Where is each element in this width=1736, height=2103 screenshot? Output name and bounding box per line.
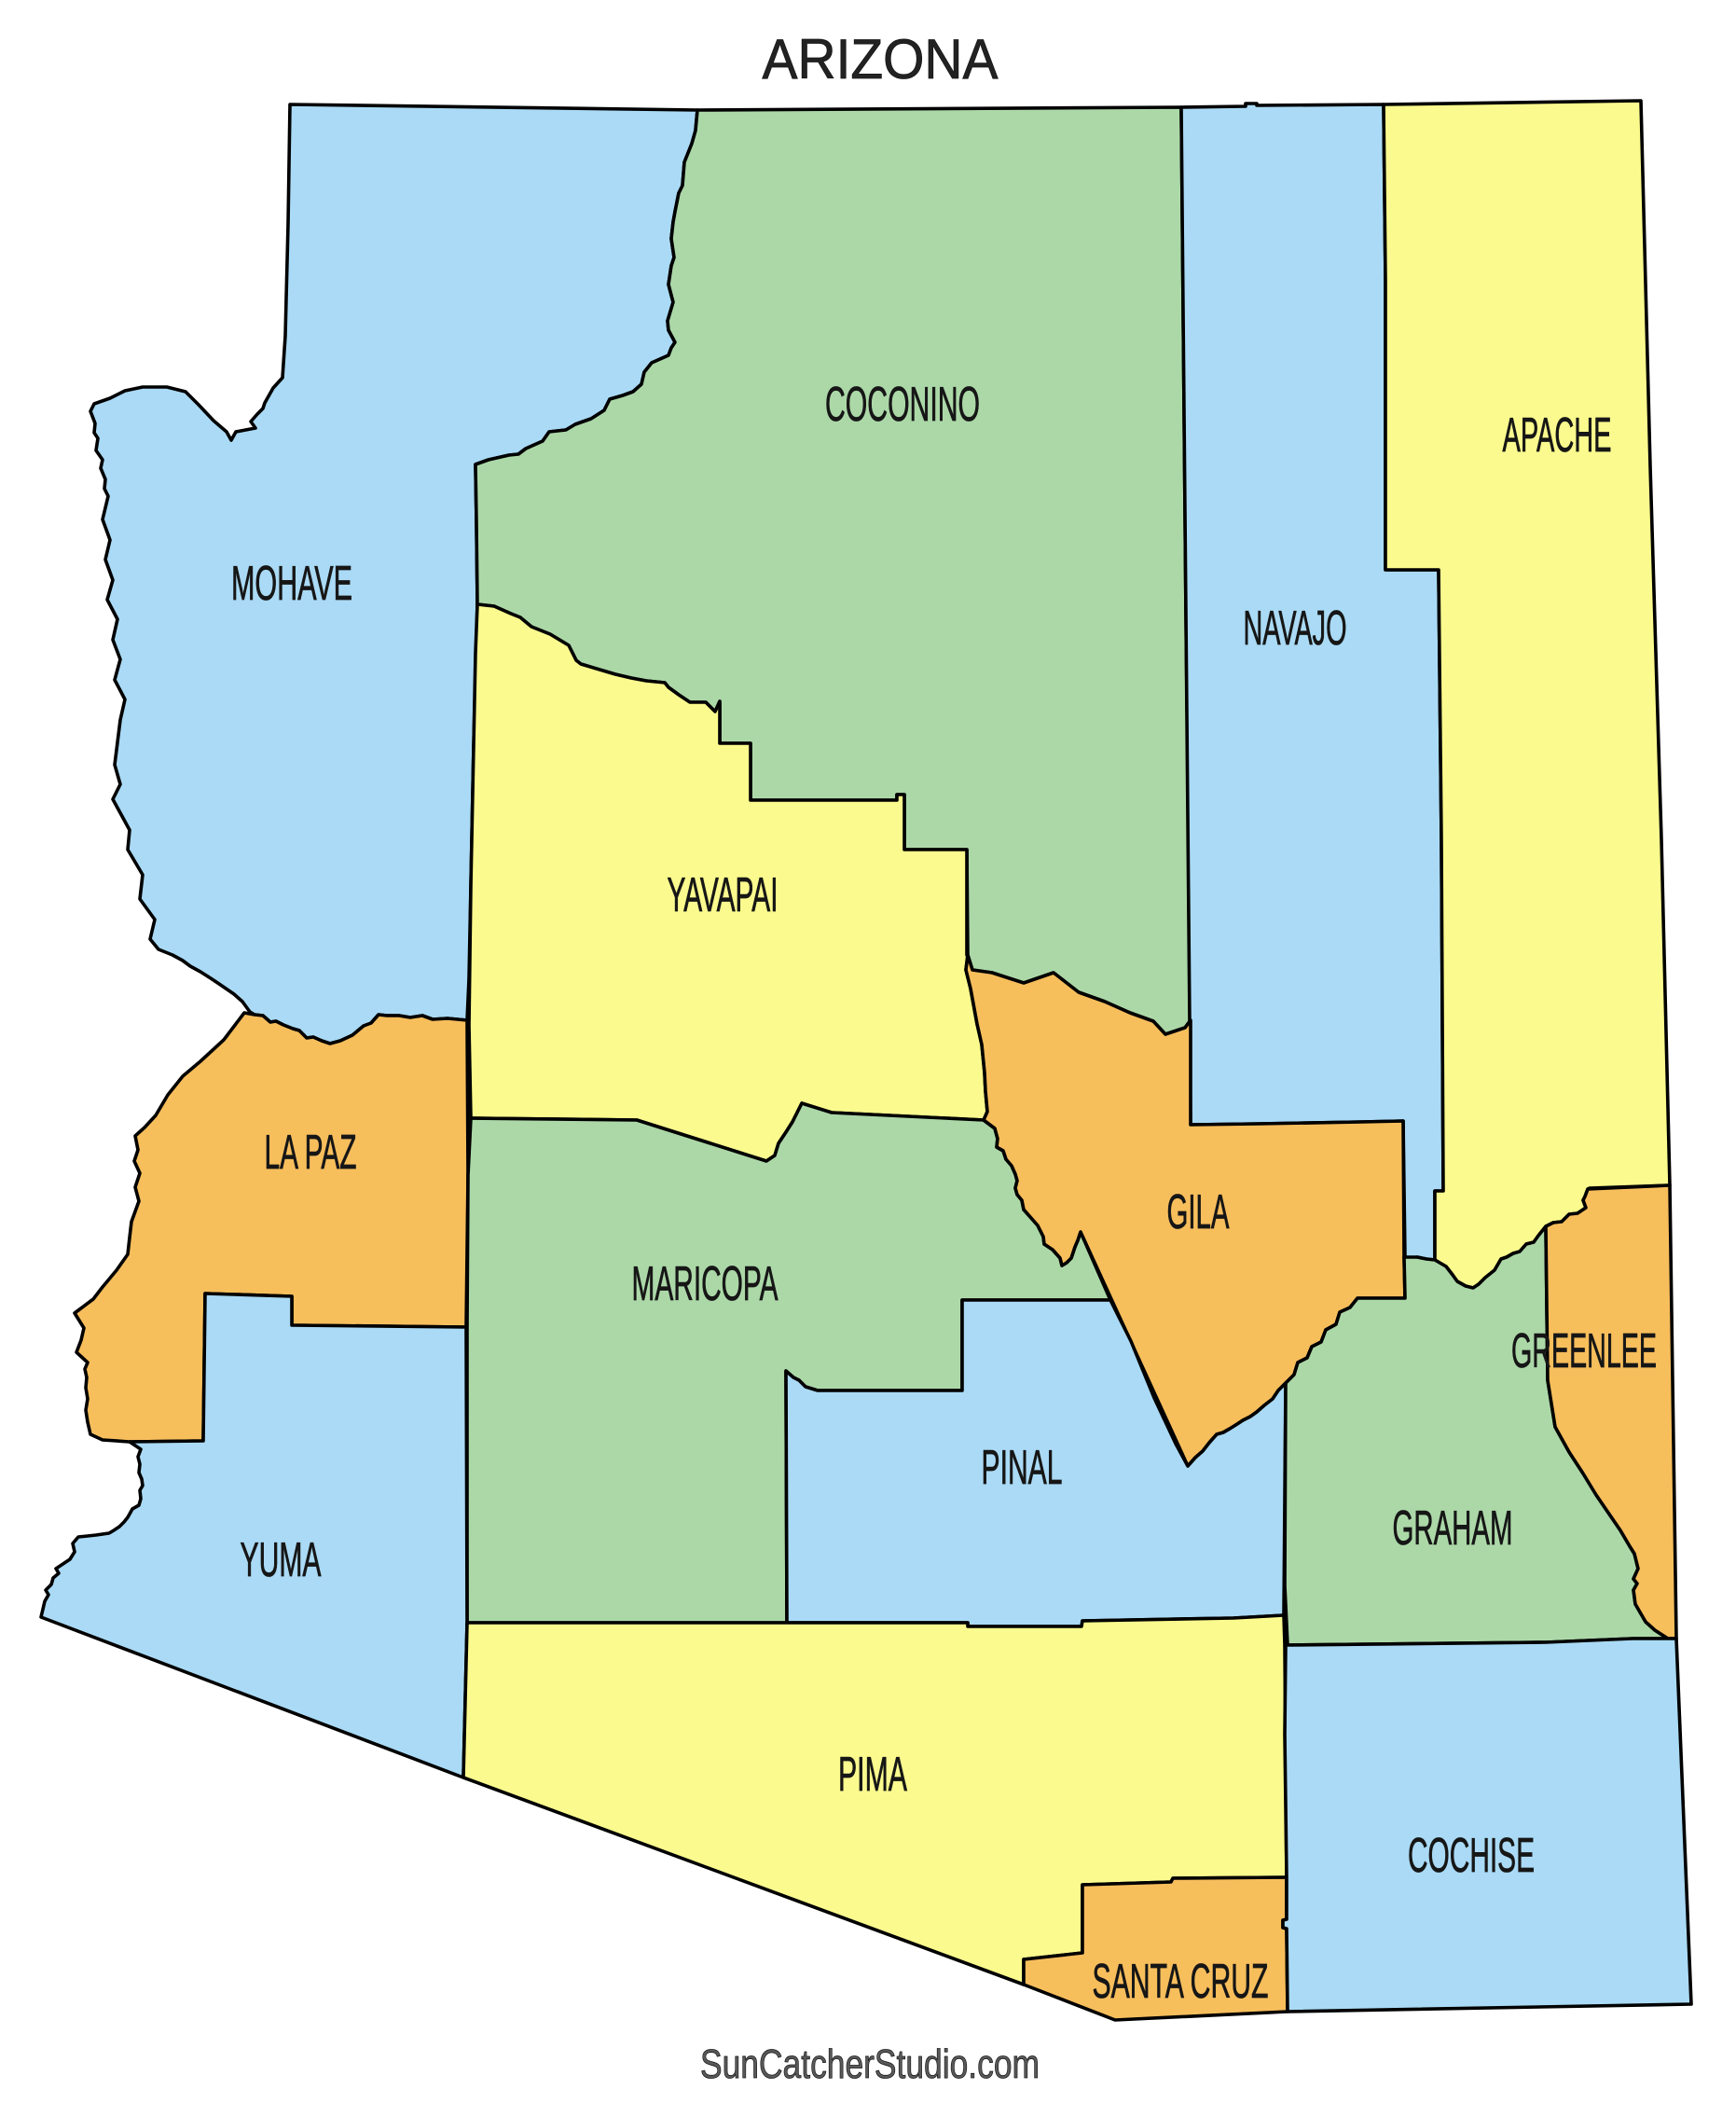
svg-text:APACHE: APACHE bbox=[1503, 408, 1612, 463]
svg-text:YUMA: YUMA bbox=[241, 1533, 322, 1587]
svg-text:MOHAVE: MOHAVE bbox=[231, 557, 352, 611]
svg-text:GREENLEE: GREENLEE bbox=[1511, 1324, 1657, 1378]
svg-text:SunCatcherStudio.com: SunCatcherStudio.com bbox=[700, 2041, 1040, 2087]
svg-text:ARIZONA: ARIZONA bbox=[763, 28, 999, 90]
svg-text:NAVAJO: NAVAJO bbox=[1244, 602, 1347, 656]
svg-text:PINAL: PINAL bbox=[982, 1441, 1063, 1495]
svg-text:COCONINO: COCONINO bbox=[825, 378, 980, 432]
svg-text:PIMA: PIMA bbox=[838, 1748, 907, 1802]
svg-text:MARICOPA: MARICOPA bbox=[632, 1257, 778, 1311]
svg-text:COCHISE: COCHISE bbox=[1408, 1829, 1535, 1883]
svg-text:LA PAZ: LA PAZ bbox=[265, 1126, 357, 1180]
svg-text:SANTA CRUZ: SANTA CRUZ bbox=[1093, 1955, 1269, 2009]
svg-text:GRAHAM: GRAHAM bbox=[1393, 1501, 1513, 1556]
svg-text:GILA: GILA bbox=[1167, 1185, 1230, 1239]
svg-text:YAVAPAI: YAVAPAI bbox=[668, 868, 778, 922]
